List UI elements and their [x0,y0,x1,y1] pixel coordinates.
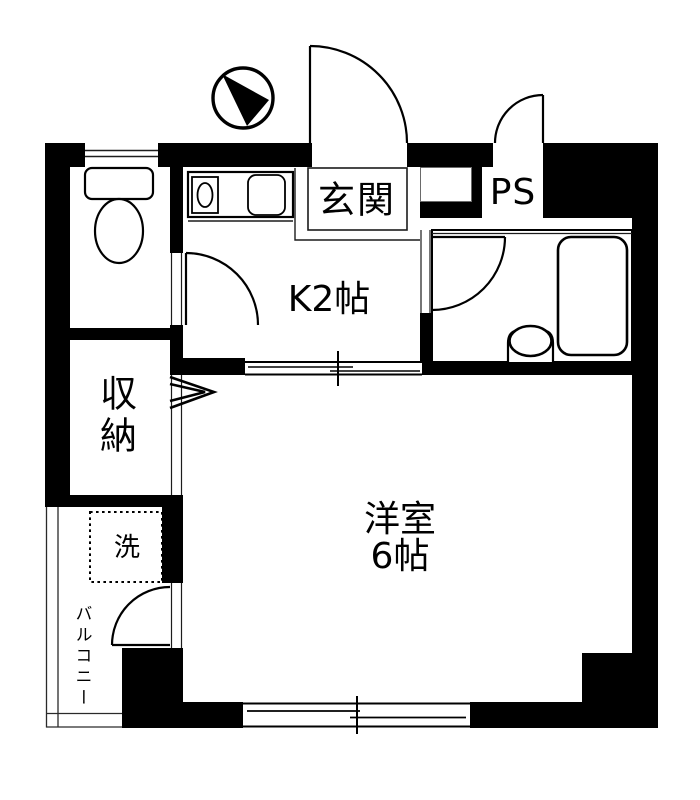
wall [45,328,183,340]
wall [158,143,312,167]
room-size: 6帖 [371,536,430,577]
floor-plan: 玄関 PS K2帖 洋室6帖 収納 洗 バルコニー [0,0,700,800]
sliding-door-icon [245,351,422,386]
wall [122,648,183,728]
slider-gap [245,362,422,375]
wall [582,653,632,702]
wall [183,358,245,375]
toilet-bowl [95,199,143,263]
sliding-window-icon [243,696,470,734]
wall [407,143,493,167]
wall [470,702,632,728]
kitchen-label: K2帖 [288,282,371,318]
toilet-tank [85,168,153,199]
wall [182,702,243,728]
toilet-window-icon [85,151,158,157]
wall [170,167,183,253]
genkan-label: 玄関 [318,182,396,219]
closet-folding-door-icon [170,375,214,495]
door-swing-arc [112,587,170,645]
washbasin-icon [510,326,552,356]
door-swing-arc [495,95,543,143]
balcony-label: バルコニー [73,605,90,710]
compass-needle [222,74,269,126]
toilet-door-icon [172,253,259,325]
washing-machine-label: 洗 [114,535,140,561]
bathroom [421,230,632,362]
shoe-cabinet [421,168,472,202]
wall [632,143,658,728]
wall [162,507,183,583]
storage-label: 収納 [97,374,134,458]
bathtub-icon [558,237,627,355]
door-swing-arc [186,253,258,325]
wall [543,167,632,218]
balcony-door-icon [112,583,182,648]
wall [45,143,85,167]
door-swing-arc [310,46,407,143]
wall [420,202,482,218]
burner [198,183,213,207]
chevron [170,377,214,408]
western-room-label: 洋室6帖 [364,501,436,575]
ps-door-icon [495,95,543,143]
room-name: 洋室 [364,499,436,540]
toilet-icon [85,168,153,263]
kitchen-counter-icon [188,172,293,221]
compass-icon [213,68,273,128]
wall [45,495,183,507]
ps-label: PS [490,175,537,211]
entrance-door-icon [310,46,407,143]
kitchen-sink-icon [248,175,285,215]
wall [432,362,658,375]
